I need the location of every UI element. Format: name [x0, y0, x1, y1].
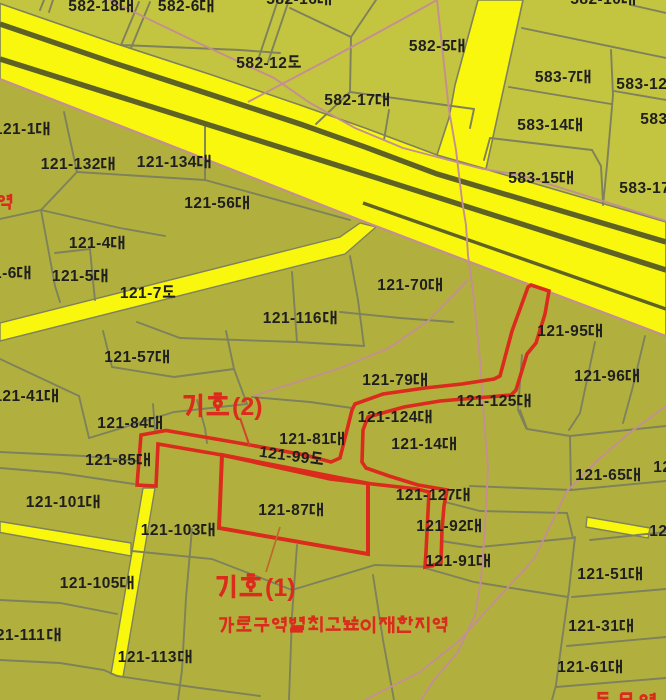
svg-text:121-125: 121-125	[457, 393, 517, 410]
svg-text:583-17: 583-17	[619, 180, 666, 197]
svg-text:121-103: 121-103	[141, 522, 201, 539]
svg-text:121-41: 121-41	[0, 388, 44, 405]
svg-text:582-6: 582-6	[158, 0, 200, 15]
svg-text:121-127: 121-127	[396, 487, 456, 504]
svg-text:121-31: 121-31	[568, 618, 619, 635]
svg-text:583-15: 583-15	[508, 170, 559, 187]
svg-text:121-70: 121-70	[377, 277, 428, 294]
svg-text:121-6: 121-6	[0, 265, 17, 282]
svg-text:121-64: 121-64	[649, 523, 666, 540]
svg-text:121-61: 121-61	[557, 659, 608, 676]
svg-text:121-132: 121-132	[41, 156, 101, 173]
svg-text:121-95: 121-95	[537, 323, 588, 340]
svg-text:583-16: 583-16	[640, 111, 666, 128]
svg-text:121-7: 121-7	[120, 285, 162, 302]
svg-text:583-12: 583-12	[616, 76, 666, 93]
svg-text:121-111: 121-111	[0, 627, 45, 644]
svg-text:582-10: 582-10	[570, 0, 621, 8]
svg-text:121-97: 121-97	[653, 459, 666, 476]
svg-text:121-87: 121-87	[258, 502, 309, 519]
svg-text:121-79: 121-79	[362, 372, 413, 389]
svg-text:(2): (2)	[232, 393, 263, 421]
svg-text:583-7: 583-7	[535, 69, 577, 86]
svg-text:582-16: 582-16	[266, 0, 317, 8]
svg-text:582-12: 582-12	[236, 55, 287, 72]
svg-text:121-56: 121-56	[184, 195, 235, 212]
svg-text:121-81: 121-81	[279, 431, 330, 448]
svg-text:121-134: 121-134	[137, 154, 197, 171]
svg-text:121-85: 121-85	[85, 452, 136, 469]
svg-text:121-105: 121-105	[60, 575, 120, 592]
svg-text:582-5: 582-5	[409, 38, 451, 55]
svg-text:121-101: 121-101	[26, 494, 86, 511]
svg-text:121-14: 121-14	[391, 436, 442, 453]
svg-text:121-96: 121-96	[574, 368, 625, 385]
svg-text:583-14: 583-14	[517, 117, 568, 134]
svg-text:582-18: 582-18	[68, 0, 119, 15]
svg-text:121-57: 121-57	[104, 349, 155, 366]
svg-text:121-92: 121-92	[416, 518, 467, 535]
svg-text:121-124: 121-124	[358, 409, 418, 426]
svg-text:121-1: 121-1	[0, 121, 36, 138]
svg-text:582-17: 582-17	[324, 92, 375, 109]
svg-text:121-4: 121-4	[69, 235, 111, 252]
svg-text:(1): (1)	[265, 574, 296, 602]
svg-text:121-84: 121-84	[97, 415, 148, 432]
svg-text:121-91: 121-91	[425, 553, 476, 570]
svg-text:121-113: 121-113	[118, 649, 177, 666]
svg-text:121-116: 121-116	[263, 310, 322, 327]
svg-text:121-5: 121-5	[52, 268, 94, 285]
svg-text:121-65: 121-65	[575, 467, 626, 484]
svg-text:121-51: 121-51	[577, 566, 628, 583]
